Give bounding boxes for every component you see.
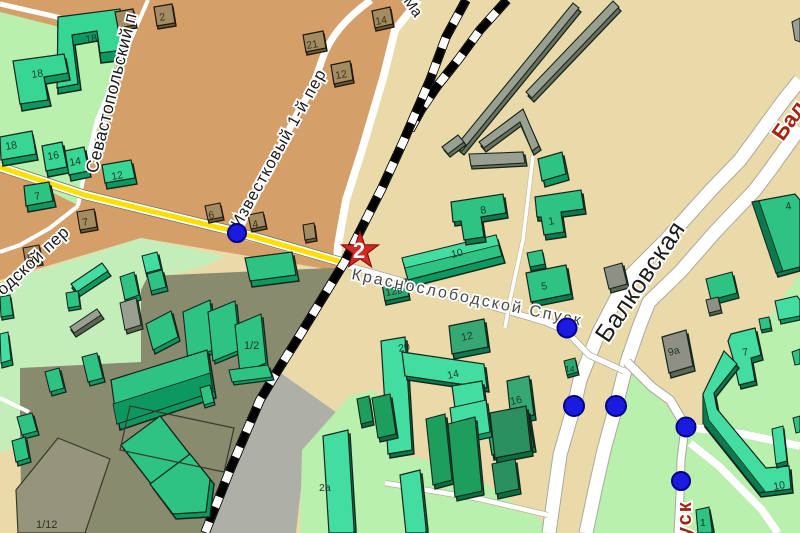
svg-text:18: 18 — [85, 32, 98, 46]
svg-text:10: 10 — [772, 479, 786, 493]
svg-text:14: 14 — [565, 364, 575, 374]
svg-text:14: 14 — [68, 155, 82, 169]
svg-text:12: 12 — [110, 169, 124, 183]
svg-text:18: 18 — [31, 67, 44, 81]
svg-text:18: 18 — [4, 139, 18, 153]
svg-text:уск: уск — [674, 500, 696, 533]
svg-text:1/2: 1/2 — [244, 340, 259, 352]
svg-text:2: 2 — [353, 238, 365, 263]
svg-text:1: 1 — [700, 517, 706, 529]
svg-text:1/12: 1/12 — [36, 519, 57, 531]
svg-text:21: 21 — [305, 38, 319, 52]
svg-text:2а: 2а — [319, 482, 331, 494]
svg-text:14: 14 — [374, 14, 388, 28]
svg-text:12: 12 — [334, 68, 348, 82]
svg-text:16: 16 — [46, 149, 60, 163]
